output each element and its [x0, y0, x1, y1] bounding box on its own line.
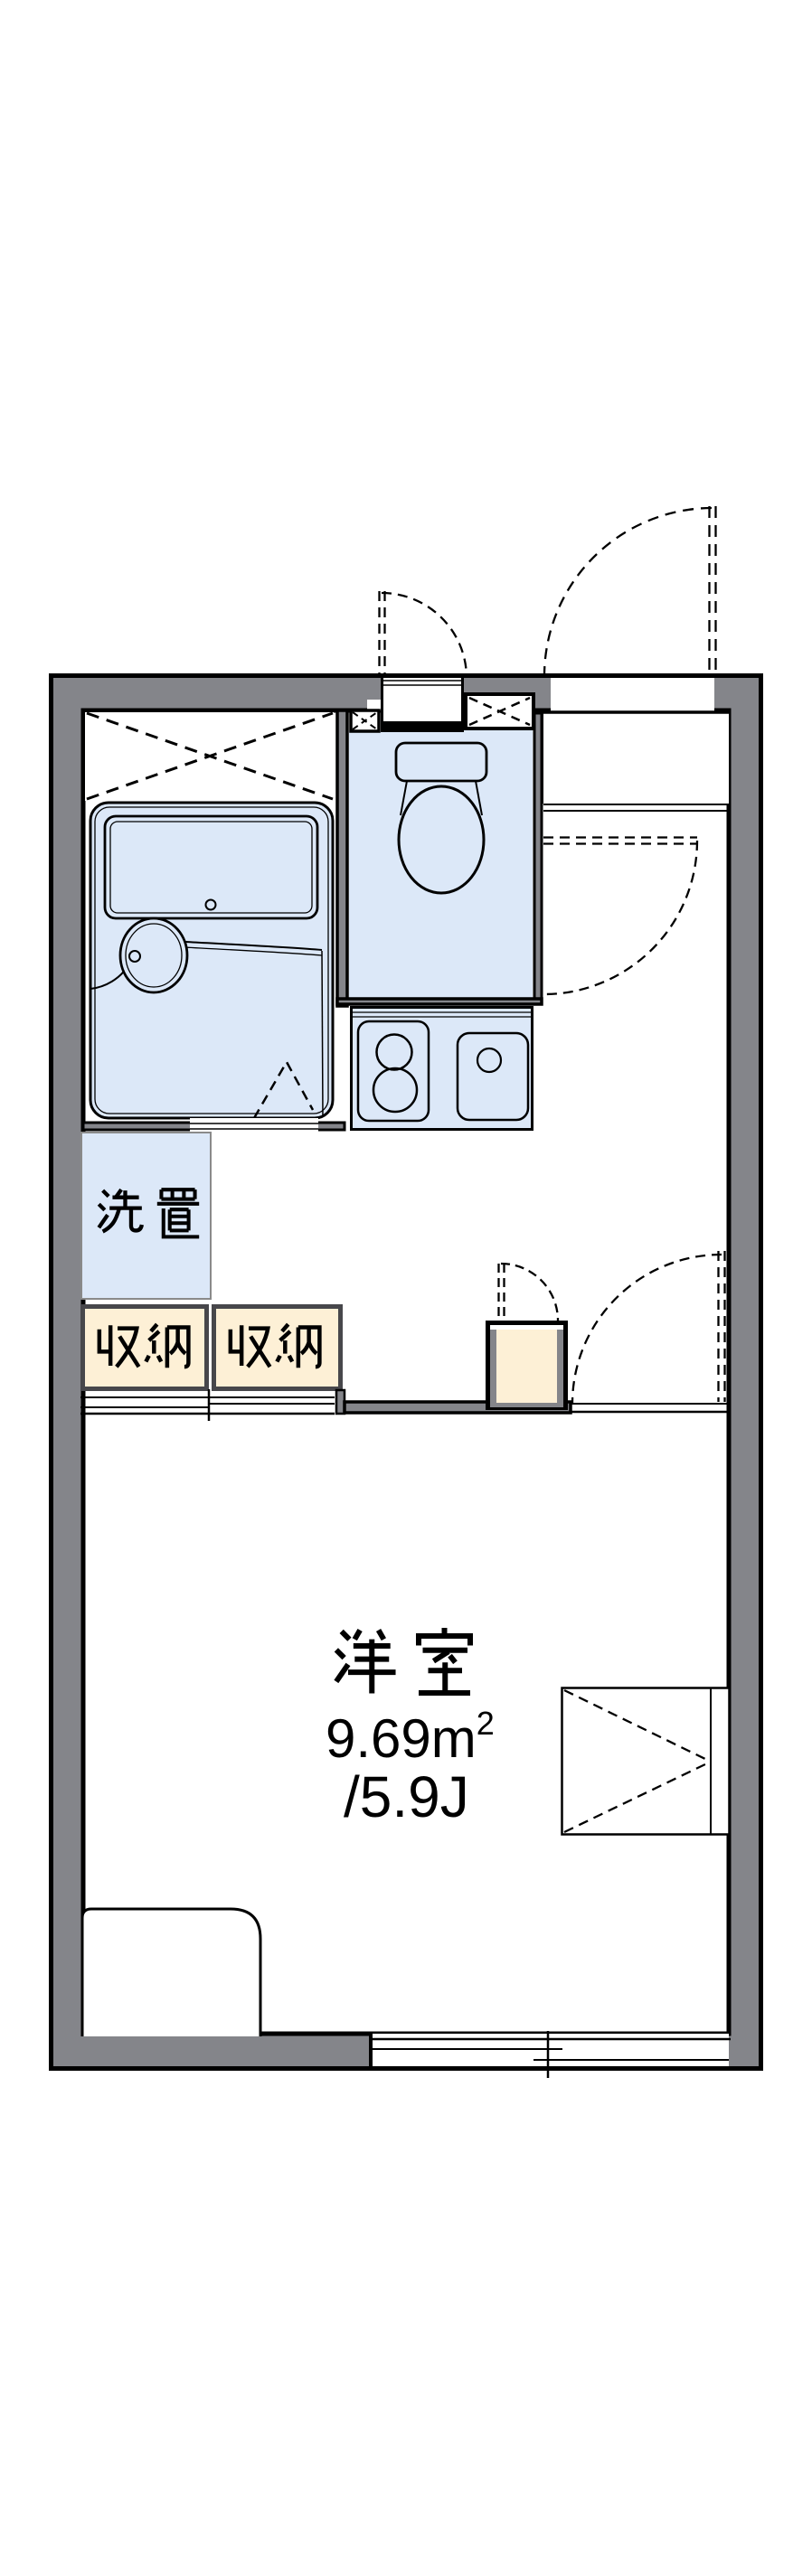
svg-text:9.69m2: 9.69m2 — [326, 1705, 495, 1769]
svg-text:/5.9J: /5.9J — [344, 1764, 469, 1829]
